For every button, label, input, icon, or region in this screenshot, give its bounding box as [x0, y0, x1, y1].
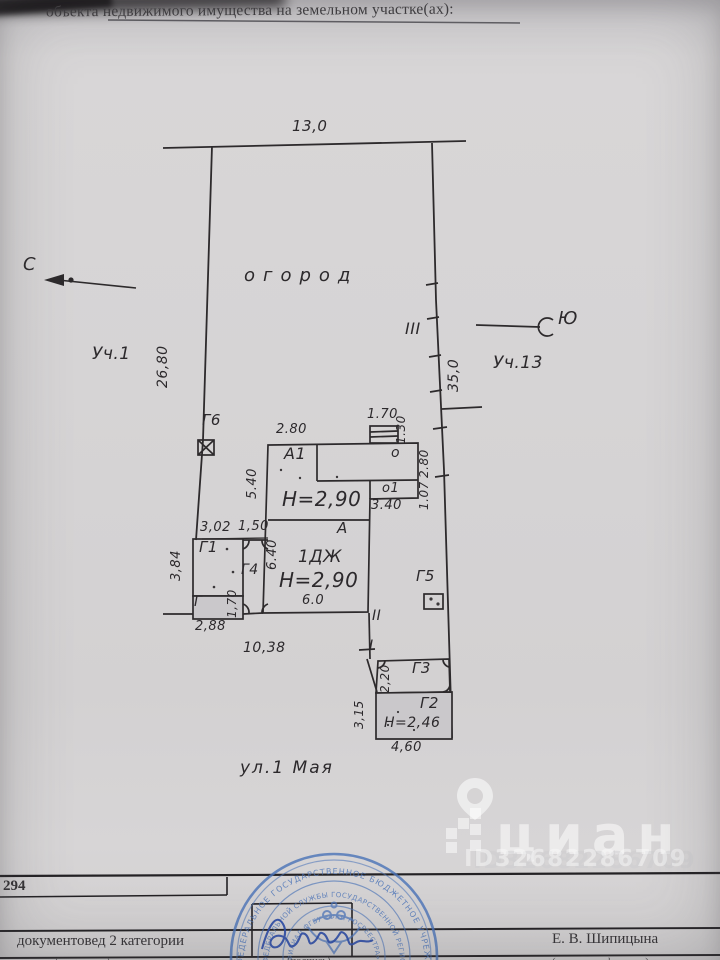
- building-o1-label: о1: [382, 482, 399, 495]
- mark-i-label: I: [369, 639, 374, 653]
- building-g2-label: Г2: [420, 696, 439, 711]
- dim-640-label: 6.40: [266, 539, 279, 570]
- building-o-label: о: [391, 446, 400, 460]
- dim-right-side-label: 35,0: [447, 359, 461, 392]
- compass-north-label: С: [23, 256, 36, 274]
- building-g-label: Г: [194, 595, 202, 609]
- footer-role: документовед 2 категории: [17, 933, 184, 950]
- height-g2-label: Н=2,46: [384, 716, 440, 730]
- page-title: объекта недвижимого имущества на земельн…: [46, 1, 454, 22]
- height-house-label: Н=2,90: [279, 570, 358, 590]
- dim-220-label: 2,20: [379, 664, 391, 693]
- building-g1-label: Г1: [199, 540, 218, 555]
- scanned-site-plan-page: ФЕДЕРАЛЬНОЕ ГОСУДАРСТВЕННОЕ БЮДЖЕТНОЕ УЧ…: [0, 0, 720, 960]
- building-g3-label: Г3: [412, 661, 431, 676]
- building-house-label: 1ДЖ: [298, 549, 342, 566]
- dim-plot-width-label: 13,0: [292, 119, 327, 134]
- building-g5-label: Г5: [416, 569, 435, 584]
- building-a-label: А: [337, 521, 348, 536]
- section-iii-label: III: [405, 321, 421, 337]
- page-number: 294: [3, 878, 26, 895]
- compass-south-label: Ю: [558, 310, 578, 328]
- south-arrow: [476, 318, 553, 336]
- dim-280-right-label: 2.80: [418, 449, 430, 478]
- building-a1-label: А1: [284, 446, 306, 462]
- garden-label: огород: [244, 267, 358, 285]
- dim-130-label: 1.30: [395, 415, 407, 444]
- plan-drawing-svg: ФЕДЕРАЛЬНОЕ ГОСУДАРСТВЕННОЕ БЮДЖЕТНОЕ УЧ…: [0, 0, 720, 960]
- street-label: ул.1 Мая: [240, 760, 334, 777]
- mark-ii-label: II: [372, 609, 381, 623]
- building-g6-label: Г6: [202, 413, 221, 428]
- dim-280-top-label: 2.80: [276, 423, 307, 436]
- dim-170-left-label: 1,70: [226, 589, 238, 618]
- north-arrow: [44, 274, 136, 288]
- dim-left-side-label: 26,80: [156, 345, 170, 388]
- dim-384-label: 3,84: [170, 550, 183, 581]
- plot-right-label: Уч.13: [493, 355, 543, 372]
- dim-288-label: 2,88: [195, 620, 226, 633]
- height-a1-label: Н=2,90: [282, 489, 361, 509]
- plot-left-label: Уч.1: [92, 346, 131, 363]
- dim-1038-label: 10,38: [243, 641, 286, 655]
- building-g4-label: Г4: [241, 563, 259, 577]
- dim-340-label: 3.40: [371, 499, 402, 512]
- dim-302-label: 3,02: [200, 521, 231, 534]
- dim-540-label: 5.40: [246, 468, 259, 499]
- dim-60-label: 6.0: [302, 594, 324, 607]
- dim-150-label: 1,50: [238, 520, 269, 533]
- dim-107-label: 1.07: [418, 481, 430, 510]
- dim-460-label: 4,60: [391, 741, 422, 754]
- caption-signature: (подпись): [287, 956, 331, 960]
- official-stamp: ФЕДЕРАЛЬНОЕ ГОСУДАРСТВЕННОЕ БЮДЖЕТНОЕ УЧ…: [231, 854, 437, 960]
- footer-name: Е. В. Шипицына: [552, 931, 658, 948]
- dim-315-label: 3,15: [353, 700, 365, 729]
